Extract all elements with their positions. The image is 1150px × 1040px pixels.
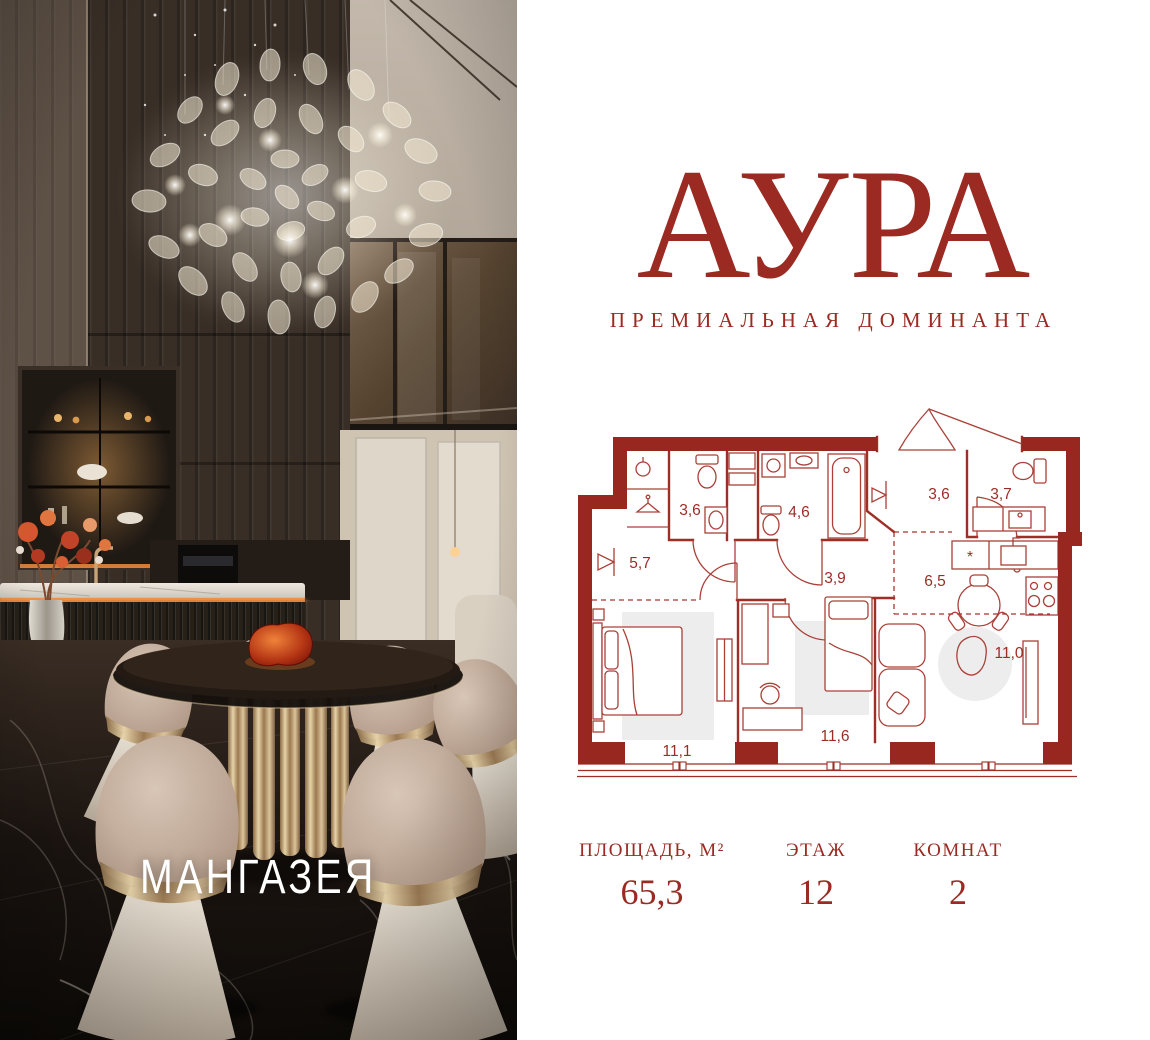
door-pictogram-icon <box>872 481 886 509</box>
room-area-label: 4,6 <box>788 504 810 521</box>
developer-brand: МАНГАЗЕЯ <box>0 850 517 905</box>
kitchen-fixtures <box>947 538 1058 632</box>
round-table <box>958 584 1000 626</box>
floor-plan: 3,6 4,6 3,6 3,7 5,7 3,9 6,5 11,0 11,1 11… <box>577 407 1098 779</box>
project-logo: АУРА <box>517 146 1150 304</box>
room-area-label: 6,5 <box>924 573 946 590</box>
project-tagline: ПРЕМИАЛЬНАЯ ДОМИНАНТА <box>517 308 1150 333</box>
room-area-label: 11,0 <box>994 645 1023 662</box>
room-area-label: 3,6 <box>928 486 950 503</box>
room-area-label: 3,7 <box>990 486 1012 503</box>
fridge-symbol: * <box>967 549 973 566</box>
room-area-label: 11,6 <box>820 728 849 745</box>
room-area-label: 11,1 <box>662 743 691 760</box>
flyer-page: { "header": { "title": "АУРА", "tagline"… <box>0 0 1150 1040</box>
stat-floor-label: ЭТАЖ <box>786 840 846 862</box>
door-pictogram-icon <box>598 548 614 576</box>
stat-area: ПЛОЩАДЬ, М² 65,3 <box>579 840 725 913</box>
stat-rooms-value: 2 <box>913 871 1002 913</box>
stat-rooms-label: КОМНАТ <box>913 840 1002 862</box>
window-mullions <box>673 762 995 770</box>
room-area-label: 3,6 <box>679 502 701 519</box>
desk <box>743 708 802 730</box>
hall-niches <box>627 457 669 527</box>
stat-area-value: 65,3 <box>579 871 725 913</box>
room-area-label: 3,9 <box>824 570 846 587</box>
tv-console <box>1023 641 1038 724</box>
stat-area-label: ПЛОЩАДЬ, М² <box>579 840 725 862</box>
hanger-icon <box>637 499 659 512</box>
stat-floor: ЭТАЖ 12 <box>786 840 846 913</box>
stat-floor-value: 12 <box>786 871 846 913</box>
room-area-label: 5,7 <box>629 555 651 572</box>
developer-brand-text: МАНГАЗЕЯ <box>140 850 377 905</box>
stat-rooms: КОМНАТ 2 <box>913 840 1002 913</box>
